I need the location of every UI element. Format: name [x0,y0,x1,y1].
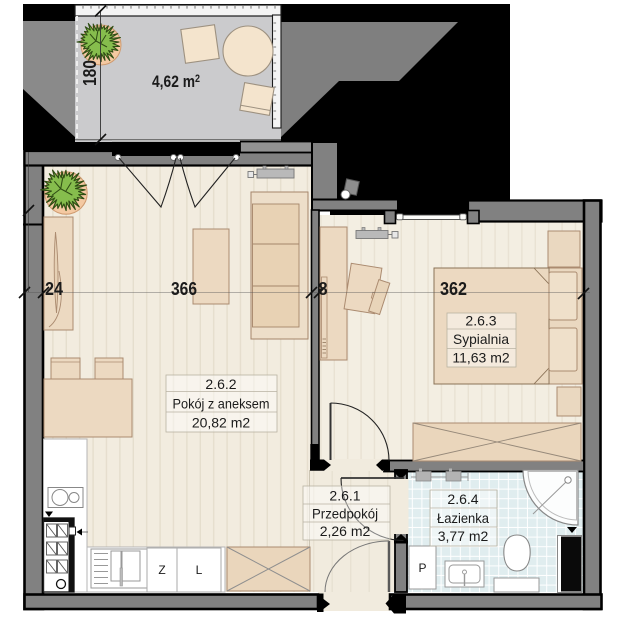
svg-text:20,82 m2: 20,82 m2 [192,415,251,431]
svg-text:Pokój z aneksem: Pokój z aneksem [173,396,270,412]
svg-text:2,26 m2: 2,26 m2 [320,523,371,539]
svg-text:4,62 m2: 4,62 m2 [152,72,200,91]
svg-text:L: L [196,563,203,577]
svg-text:362: 362 [440,279,467,299]
svg-text:366: 366 [171,279,197,299]
svg-text:P: P [418,561,426,575]
svg-text:Z: Z [158,563,165,577]
svg-text:Łazienka: Łazienka [437,510,489,526]
svg-text:2.6.1: 2.6.1 [329,488,360,504]
svg-text:2.6.4: 2.6.4 [447,491,478,507]
svg-text:Sypialnia: Sypialnia [453,331,509,347]
svg-text:2.6.2: 2.6.2 [205,376,236,392]
svg-text:11,63 m2: 11,63 m2 [452,350,510,366]
svg-text:Przedpokój: Przedpokój [312,506,378,522]
svg-text:2.6.3: 2.6.3 [465,313,496,329]
svg-text:180: 180 [80,60,100,86]
svg-text:3,77 m2: 3,77 m2 [438,528,489,544]
svg-text:24: 24 [45,279,63,299]
svg-text:8: 8 [319,279,328,299]
